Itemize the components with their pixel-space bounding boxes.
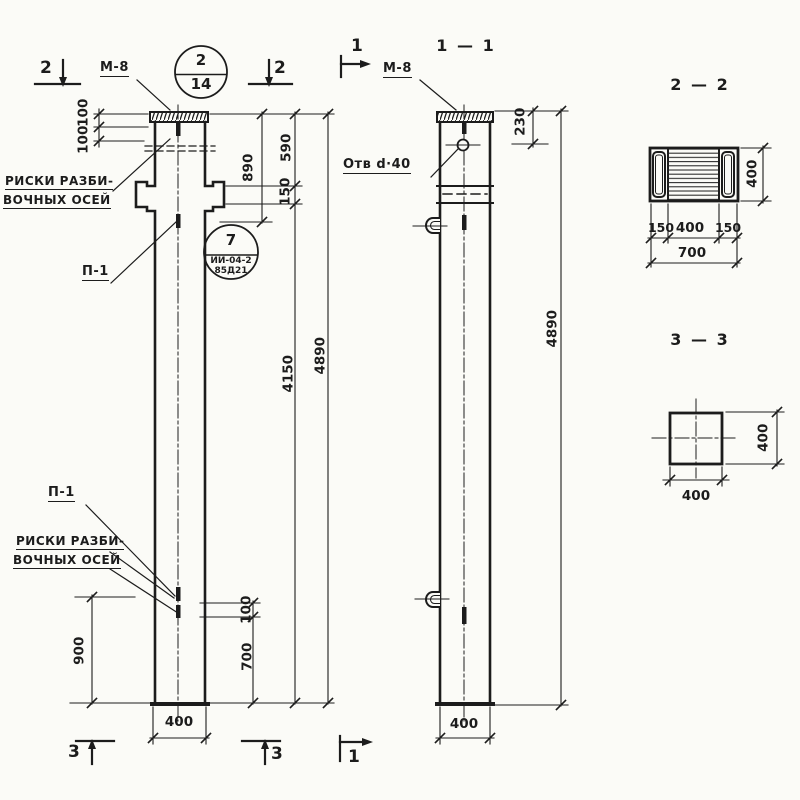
title-section-2-2: 2 — 2 xyxy=(660,75,740,94)
dim-400-2-2-mid: 400 xyxy=(672,222,708,236)
label-risks-top-2: ВОЧНЫХ ОСЕЙ xyxy=(3,194,111,209)
dim-150-2-2-right: 150 xyxy=(712,222,744,235)
ref-detail-number: 7 xyxy=(218,233,244,248)
dim-100-top-b: 100 xyxy=(77,123,91,157)
dim-4890-front: 4890 xyxy=(314,334,328,378)
dim-230: 230 xyxy=(514,105,528,139)
dim-590: 590 xyxy=(280,131,294,165)
dim-400-front-width: 400 xyxy=(161,716,197,730)
dim-890: 890 xyxy=(242,151,256,185)
dim-400-3-3-height: 400 xyxy=(757,421,771,455)
label-risks-bottom-1: РИСКИ РАЗБИ- xyxy=(16,535,124,550)
dim-400-3-3-width: 400 xyxy=(678,490,714,504)
label-risks-top-1: РИСКИ РАЗБИ- xyxy=(5,175,113,190)
stamp-quantity: 14 xyxy=(188,77,214,92)
title-section-1-1: 1 — 1 xyxy=(434,36,498,55)
dim-4150: 4150 xyxy=(282,352,296,396)
label-p1-bottom: П-1 xyxy=(48,486,75,502)
label-risks-bottom-2: ВОЧНЫХ ОСЕЙ xyxy=(13,554,121,569)
lifting-loop-top xyxy=(413,218,447,233)
section-mark-3-left: 3 xyxy=(68,744,80,761)
drawing-canvas: 2 2 3 3 М-8 П-1 П-1 РИСКИ РАЗБИ- ВОЧНЫХ … xyxy=(0,0,800,800)
label-m8-front: М-8 xyxy=(100,61,129,77)
section-mark-3-right: 3 xyxy=(271,746,283,763)
label-hole-d40: Отв d·40 xyxy=(343,158,411,174)
section-mark-2-left: 2 xyxy=(40,60,52,77)
dim-900: 900 xyxy=(73,634,87,668)
drawing-linework xyxy=(0,0,800,800)
dim-100-bottom: 100 xyxy=(240,593,254,627)
lifting-loop-bottom xyxy=(415,592,449,607)
label-m8-1-1: М-8 xyxy=(383,62,412,78)
dim-4890-1-1: 4890 xyxy=(546,307,560,351)
section-mark-1-bottom: 1 xyxy=(348,749,360,766)
sec11-dim-ticks xyxy=(436,107,566,743)
section-mark-1-top: 1 xyxy=(351,38,363,55)
dim-700: 700 xyxy=(241,640,255,674)
label-p1-top: П-1 xyxy=(82,265,109,281)
title-section-3-3: 3 — 3 xyxy=(660,330,740,349)
dim-400-1-1-width: 400 xyxy=(446,718,482,732)
dim-400-2-2-height: 400 xyxy=(746,157,760,191)
ref-series: ИИ-04-2 xyxy=(205,257,257,266)
stamp-position-number: 2 xyxy=(188,53,214,68)
ref-sheet: 85Д21 xyxy=(209,267,253,276)
dim-700-2-2: 700 xyxy=(674,247,710,261)
section-mark-2-right: 2 xyxy=(274,60,286,77)
dim-150-console: 150 xyxy=(279,175,293,209)
